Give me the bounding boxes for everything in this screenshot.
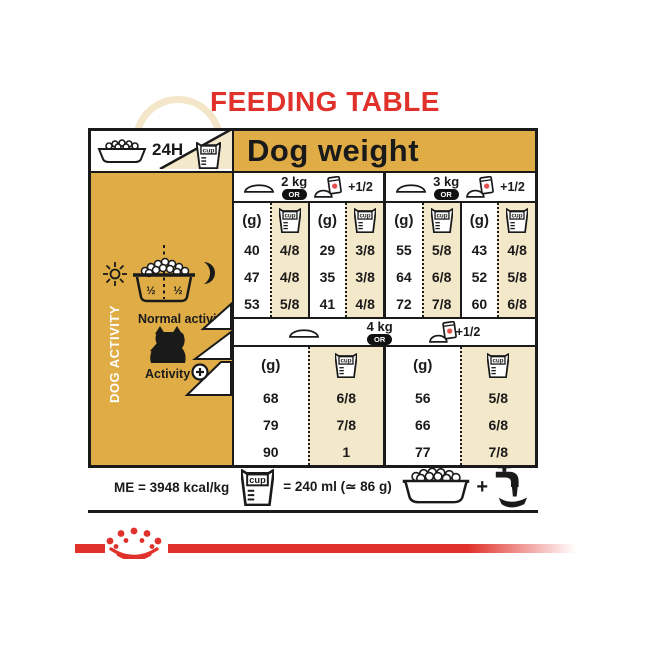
- cup-column: cup 3/8 3/8 4/8: [345, 203, 383, 317]
- weight-label: 2 kg: [281, 175, 307, 188]
- bowl-pouch-icon: [466, 176, 496, 199]
- or-badge: OR: [282, 189, 307, 200]
- cup-icon-label: cup: [284, 212, 295, 219]
- cup-column: cup 5/8 6/8 7/8: [422, 203, 460, 317]
- cup-icon: cup: [241, 469, 274, 506]
- half-right-label: ½: [173, 285, 182, 297]
- cup-column: cup 4/8 5/8 6/8: [497, 203, 535, 317]
- cell-value: 7/8: [432, 290, 451, 317]
- cell-value: 4/8: [280, 237, 299, 264]
- cell-value: 5/8: [489, 384, 508, 411]
- cell-value: 77: [415, 438, 431, 465]
- cup-icon-label: cup: [360, 212, 371, 219]
- subtable-2kg-3kg: (g) 40 47 53 cup: [234, 203, 535, 319]
- cell-value: 52: [472, 264, 488, 291]
- subtable-2kg: (g) 40 47 53 cup: [234, 203, 383, 317]
- cup-column: cup 5/8 6/8 7/8: [460, 347, 536, 465]
- grams-column: (g) 29 35 41: [308, 203, 346, 317]
- cup-icon: cup: [196, 142, 221, 169]
- group-header-3kg: 3 kg OR +1/2: [383, 173, 535, 201]
- cell-value: 4/8: [355, 290, 374, 317]
- cell-value: 6/8: [489, 411, 508, 438]
- plus-half-label: +1/2: [348, 180, 373, 194]
- moon-icon: [200, 261, 216, 285]
- cell-value: 4/8: [280, 264, 299, 291]
- table-body: ½ ½ DOG ACTIVITY Normal activity: [91, 173, 535, 465]
- cup-icon-label: cup: [493, 358, 504, 365]
- cell-value: 66: [415, 411, 431, 438]
- group-header-4kg: 4 kg OR +1/2: [234, 319, 535, 347]
- cell-value: 43: [472, 237, 488, 264]
- footer-info-bar: ME = 3948 kcal/kg cup = 240 ml (≃ 86 g) …: [88, 468, 538, 513]
- grams-unit: (g): [394, 203, 413, 237]
- cell-value: 6/8: [337, 384, 356, 411]
- cell-value: 47: [244, 264, 260, 291]
- bowl-pouch-icon: [429, 321, 459, 344]
- grams-unit: (g): [318, 203, 337, 237]
- cup-icon-label: cup: [436, 212, 447, 219]
- dog-weight-header: Dog weight: [232, 131, 535, 171]
- or-badge: OR: [367, 334, 392, 345]
- cell-value: 6/8: [507, 290, 526, 317]
- cup-icon: cup: [431, 208, 453, 233]
- group-header-2kg: 2 kg OR +1/2: [234, 173, 383, 201]
- cup-icon-label: cup: [202, 147, 214, 154]
- cell-value: 40: [244, 237, 260, 264]
- cup-icon: cup: [354, 208, 376, 233]
- grams-column: (g) 40 47 53: [234, 203, 270, 317]
- plus-half-label: +1/2: [456, 325, 481, 339]
- cell-value: 60: [472, 290, 488, 317]
- cell-value: 7/8: [489, 438, 508, 465]
- cell-value: 3/8: [355, 264, 374, 291]
- cell-value: 5/8: [507, 264, 526, 291]
- cup-icon-label: cup: [341, 358, 352, 365]
- cell-value: 41: [320, 290, 336, 317]
- cup-unit: cup: [354, 203, 376, 237]
- activity-label: Activity: [145, 367, 190, 381]
- cell-value: 5/8: [432, 237, 451, 264]
- page-title: FEEDING TABLE: [0, 86, 650, 118]
- feeding-table: 24H cup Dog weight: [88, 128, 538, 468]
- crown-logo: [105, 527, 163, 559]
- grams-column: (g) 56 66 77: [386, 347, 460, 465]
- bowl-icon: [289, 326, 319, 339]
- grams-column: (g) 43 52 60: [460, 203, 498, 317]
- sidebar-vertical-label: DOG ACTIVITY: [107, 303, 122, 403]
- subtable-4kg-left: (g) 68 79 90 cup: [234, 347, 383, 465]
- cup-column: cup 4/8 4/8 5/8: [270, 203, 308, 317]
- water-faucet-icon: [492, 465, 530, 509]
- table-content: 2 kg OR +1/2: [234, 173, 535, 465]
- dog-activity-sidebar: ½ ½ DOG ACTIVITY Normal activity: [91, 173, 234, 465]
- food-bowl-24h-icon: [96, 138, 148, 164]
- cup-icon: cup: [506, 208, 528, 233]
- cup-column: cup 6/8 7/8 1: [308, 347, 384, 465]
- cup-unit: cup: [487, 347, 509, 384]
- weight-or: 4 kg OR: [367, 320, 393, 345]
- cup-equivalence-label: = 240 ml (≃ 86 g): [283, 479, 391, 495]
- grams-unit: (g): [242, 203, 261, 237]
- activity-plus-icon: [191, 363, 209, 381]
- cup-unit: cup: [431, 203, 453, 237]
- cell-value: 72: [396, 290, 412, 317]
- cell-value: 35: [320, 264, 336, 291]
- subtable-4kg-right: (g) 56 66 77 cup: [383, 347, 535, 465]
- brand-bar-right: [168, 544, 584, 553]
- cup-icon: cup: [487, 353, 509, 378]
- brand-bar-left: [75, 544, 105, 553]
- cell-value: 6/8: [432, 264, 451, 291]
- sun-icon: [102, 261, 128, 287]
- grams-unit: (g): [261, 347, 280, 384]
- cell-value: 29: [320, 237, 336, 264]
- kibble-bowl-icon: [400, 468, 472, 506]
- cell-value: 53: [244, 290, 260, 317]
- cup-icon-label: cup: [512, 212, 523, 219]
- plus-half-label: +1/2: [500, 180, 525, 194]
- half-left-label: ½: [146, 285, 155, 297]
- bowl-icon: [244, 181, 274, 194]
- subtable-4kg: (g) 68 79 90 cup: [234, 347, 535, 465]
- cell-value: 68: [263, 384, 279, 411]
- grams-unit: (g): [470, 203, 489, 237]
- weight-label: 3 kg: [433, 175, 459, 188]
- plus-label: +: [476, 476, 488, 499]
- bowl-icon: [396, 181, 426, 194]
- weight-or: 2 kg OR: [281, 175, 307, 200]
- table-header-row: 24H cup Dog weight: [91, 131, 535, 173]
- or-badge: OR: [434, 189, 459, 200]
- grams-column: (g) 68 79 90: [234, 347, 308, 465]
- subtable-3kg: (g) 55 64 72 cup: [383, 203, 535, 317]
- duration-label: 24H: [152, 140, 183, 160]
- cup-icon: cup: [335, 353, 357, 378]
- bowl-pouch-icon: [314, 176, 344, 199]
- group-header-row: 2 kg OR +1/2: [234, 173, 535, 203]
- cell-value: 7/8: [337, 411, 356, 438]
- dog-silhouette-icon: [149, 325, 191, 365]
- half-half-bowl-icon: ½ ½: [131, 245, 197, 307]
- cup-icon-label: cup: [249, 475, 266, 485]
- grams-unit: (g): [413, 347, 432, 384]
- cell-value: 79: [263, 411, 279, 438]
- cup-unit: cup: [279, 203, 301, 237]
- cell-value: 56: [415, 384, 431, 411]
- weight-or: 3 kg OR: [433, 175, 459, 200]
- cell-value: 5/8: [280, 290, 299, 317]
- cup-unit: cup: [335, 347, 357, 384]
- cell-value: 64: [396, 264, 412, 291]
- cup-icon: cup: [279, 208, 301, 233]
- weight-label: 4 kg: [367, 320, 393, 333]
- metabolizable-energy-label: ME = 3948 kcal/kg: [114, 480, 229, 495]
- feeding-table-page: FEEDING TABLE 24H: [0, 0, 650, 650]
- cup-unit: cup: [506, 203, 528, 237]
- cell-value: 1: [342, 438, 350, 465]
- cell-value: 3/8: [355, 237, 374, 264]
- grams-column: (g) 55 64 72: [386, 203, 422, 317]
- cell-value: 4/8: [507, 237, 526, 264]
- cell-value: 55: [396, 237, 412, 264]
- corner-cell: 24H cup: [91, 131, 232, 171]
- cell-value: 90: [263, 438, 279, 465]
